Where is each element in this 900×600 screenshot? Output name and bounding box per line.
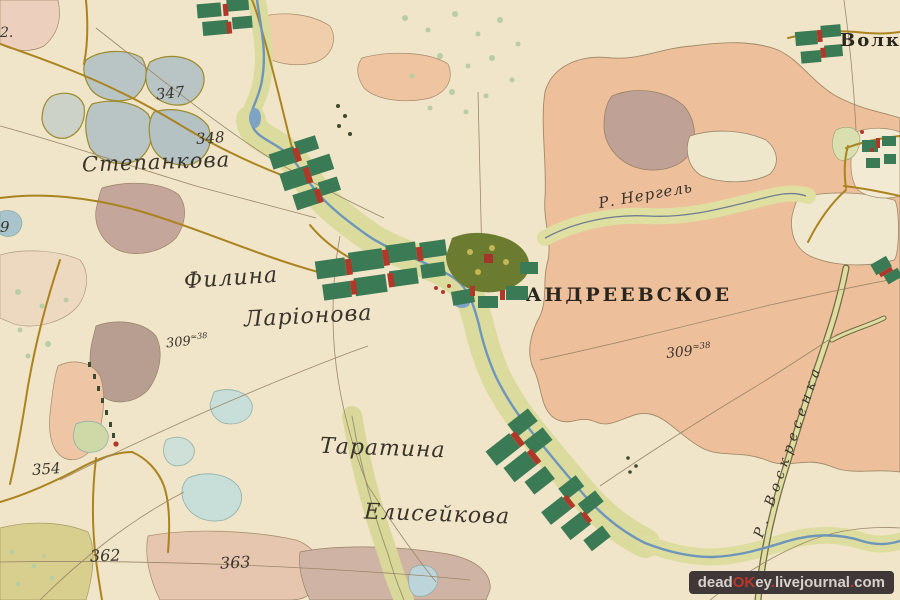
watermark-dead: dead <box>698 574 733 591</box>
area-note-left-sup: ≈38 <box>190 331 208 342</box>
label-taratina: Таратина <box>320 436 446 462</box>
landmark-red-star <box>113 441 118 446</box>
historical-map: 2. 347 348 Степанкова 9 Филина Ларіонова… <box>0 0 900 600</box>
watermark-com: com <box>854 574 885 591</box>
label-volkovo-partial: Волко <box>840 32 900 50</box>
survey-number-362: 362 <box>90 547 121 564</box>
survey-number-348: 348 <box>196 130 226 147</box>
watermark-ey: ey <box>755 574 771 591</box>
survey-number-352-partial: 2. <box>0 26 13 40</box>
label-stepankova: Степанкова <box>82 149 231 175</box>
area-note-right-main: 309 <box>665 343 693 362</box>
church-symbol <box>484 254 493 263</box>
survey-number-9-partial: 9 <box>0 220 10 235</box>
area-note-right-sup: ≈38 <box>692 341 711 353</box>
survey-number-363: 363 <box>220 554 251 572</box>
label-andreevskoe: АНДРЕЕВСКОЕ <box>526 286 732 305</box>
survey-number-347: 347 <box>155 85 185 103</box>
river-widening <box>249 108 261 128</box>
survey-number-354: 354 <box>32 461 62 478</box>
watermark-livejournal: livejournal <box>775 574 850 591</box>
label-eliseikova: Елисейкова <box>364 501 511 528</box>
watermark-link[interactable]: deadOKey.livejournal.com <box>689 571 894 594</box>
watermark-ok: OK <box>733 574 756 591</box>
area-note-left-main: 309 <box>165 334 191 352</box>
